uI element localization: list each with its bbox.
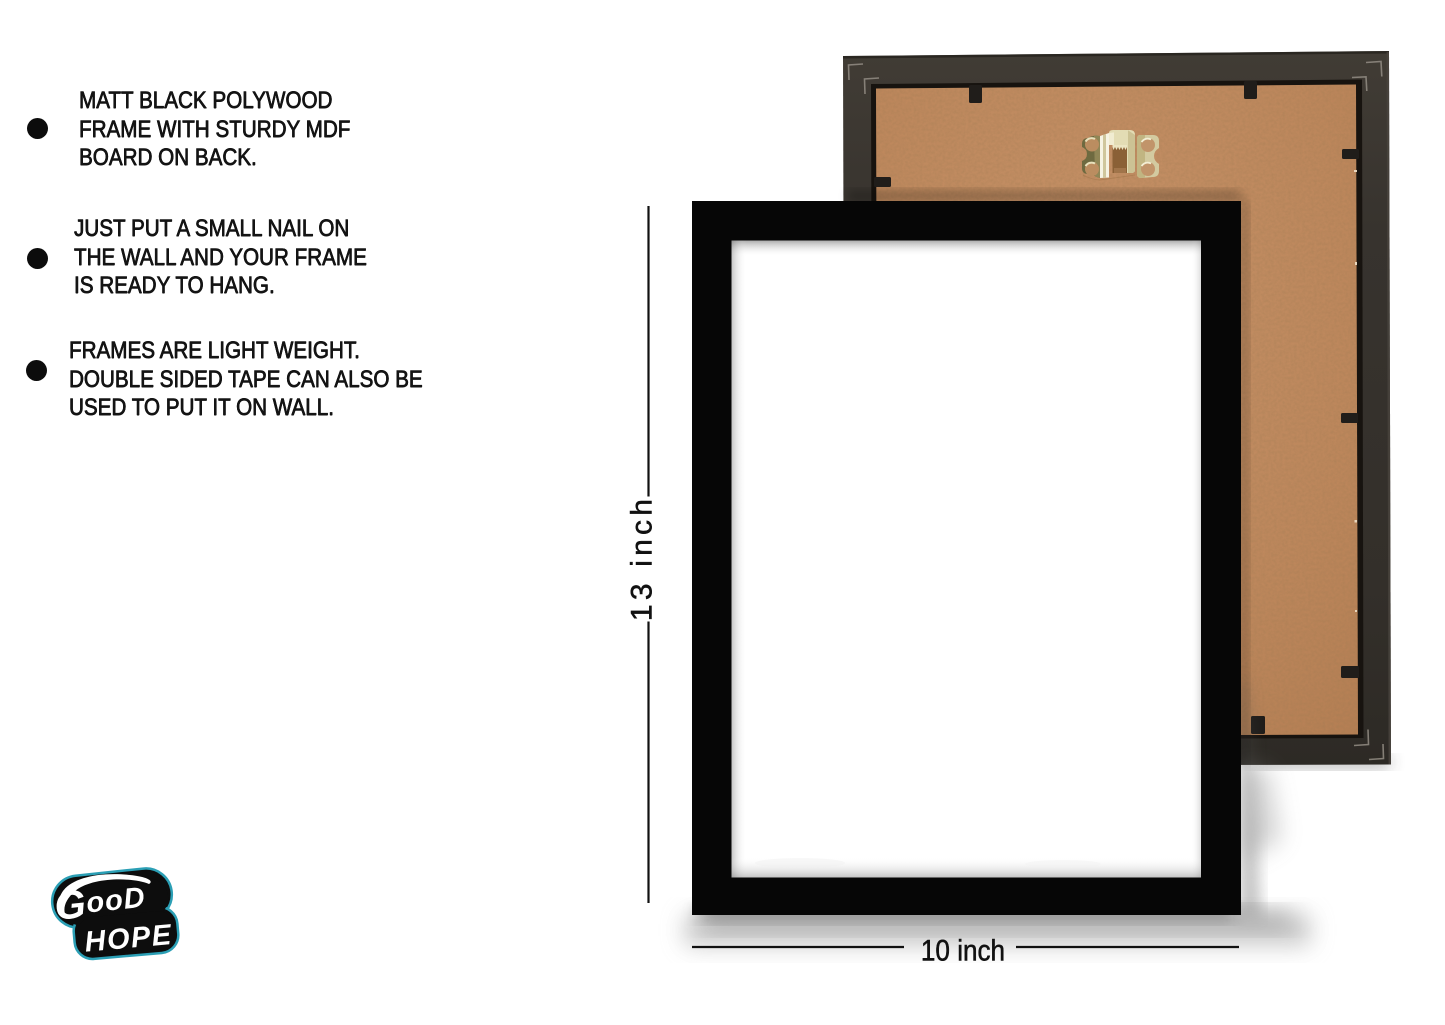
svg-text:ooD: ooD (85, 882, 147, 920)
svg-text:G: G (52, 882, 88, 929)
svg-text:10 inch: 10 inch (921, 934, 1005, 967)
svg-text:13 inch: 13 inch (626, 495, 659, 621)
